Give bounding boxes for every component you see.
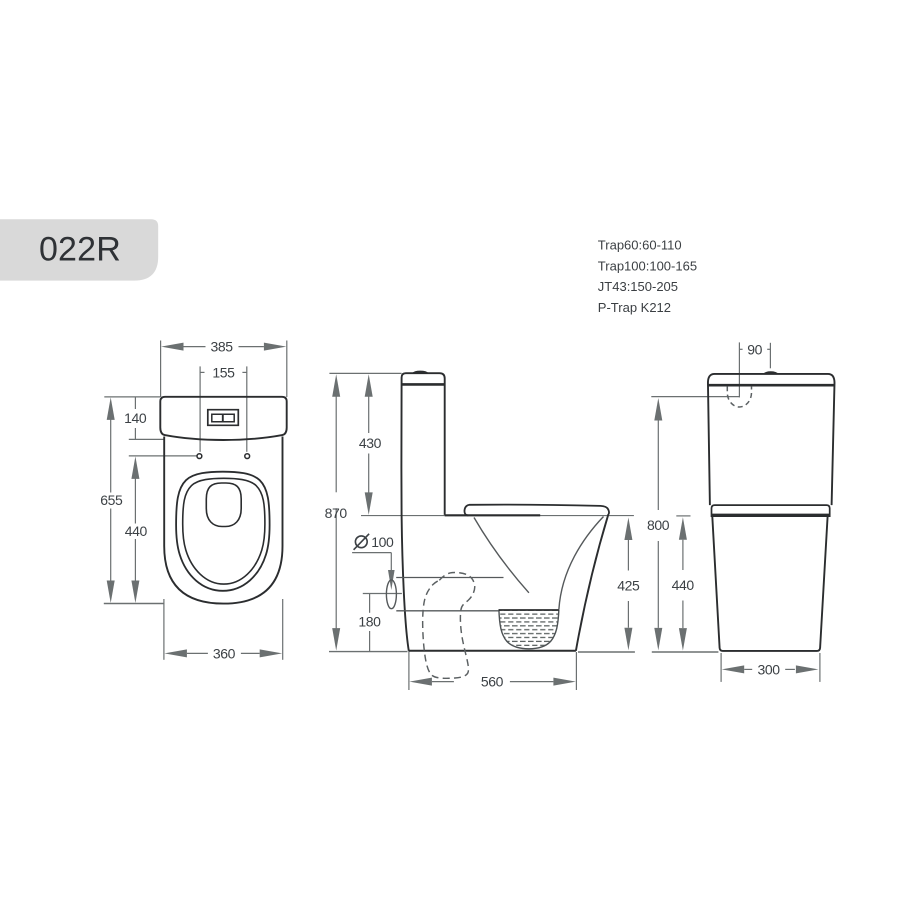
svg-text:440: 440 (125, 523, 148, 539)
svg-text:180: 180 (358, 613, 381, 629)
svg-text:JT43:150-205: JT43:150-205 (598, 279, 678, 294)
svg-text:430: 430 (359, 435, 382, 451)
svg-text:425: 425 (617, 577, 640, 593)
svg-text:870: 870 (325, 505, 348, 521)
svg-text:Trap60:60-110: Trap60:60-110 (598, 238, 682, 253)
svg-text:800: 800 (647, 517, 670, 533)
svg-text:385: 385 (211, 339, 234, 355)
svg-text:022R: 022R (39, 231, 121, 269)
svg-text:100: 100 (371, 534, 394, 550)
svg-text:P-Trap K212: P-Trap K212 (598, 300, 671, 315)
svg-text:155: 155 (212, 364, 235, 380)
svg-text:90: 90 (747, 341, 762, 357)
svg-text:655: 655 (100, 492, 123, 508)
svg-text:360: 360 (213, 645, 236, 661)
svg-text:560: 560 (481, 674, 504, 690)
svg-text:300: 300 (758, 661, 781, 677)
svg-text:Trap100:100-165: Trap100:100-165 (598, 258, 697, 273)
svg-text:140: 140 (124, 410, 147, 426)
svg-text:440: 440 (672, 577, 695, 593)
